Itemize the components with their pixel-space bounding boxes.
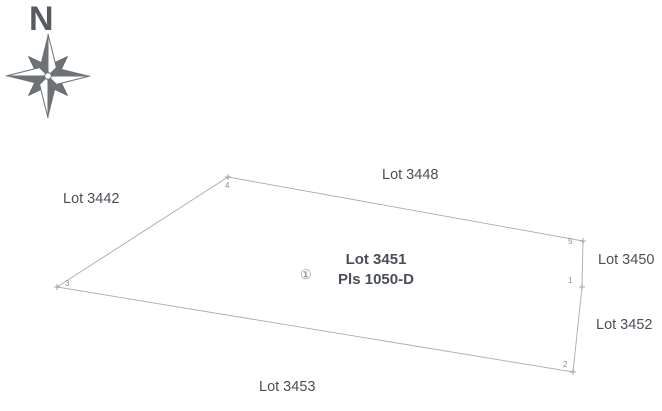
survey-sketch-sheet: N Lot 3442 Lot 3448 Lot — [0, 0, 662, 411]
vertex-label-4: 4 — [225, 182, 229, 190]
lot-label-3452: Lot 3452 — [596, 317, 652, 333]
parcel-name: Lot 3451 — [318, 250, 434, 270]
parcel-marker-circled-1: ① — [300, 268, 312, 281]
vertex-label-2: 2 — [563, 361, 567, 369]
lot-label-3442: Lot 3442 — [63, 191, 119, 207]
vertex-label-1: 1 — [568, 277, 572, 285]
parcel-plan-number: Pls 1050-D — [318, 270, 434, 290]
parcel-label: Lot 3451 Pls 1050-D — [318, 250, 434, 290]
lot-label-3450: Lot 3450 — [598, 252, 654, 268]
lot-label-3448: Lot 3448 — [382, 167, 438, 183]
vertex-label-3: 3 — [65, 280, 69, 288]
vertex-label-5: 5 — [568, 238, 572, 246]
lot-label-3453: Lot 3453 — [259, 379, 315, 395]
